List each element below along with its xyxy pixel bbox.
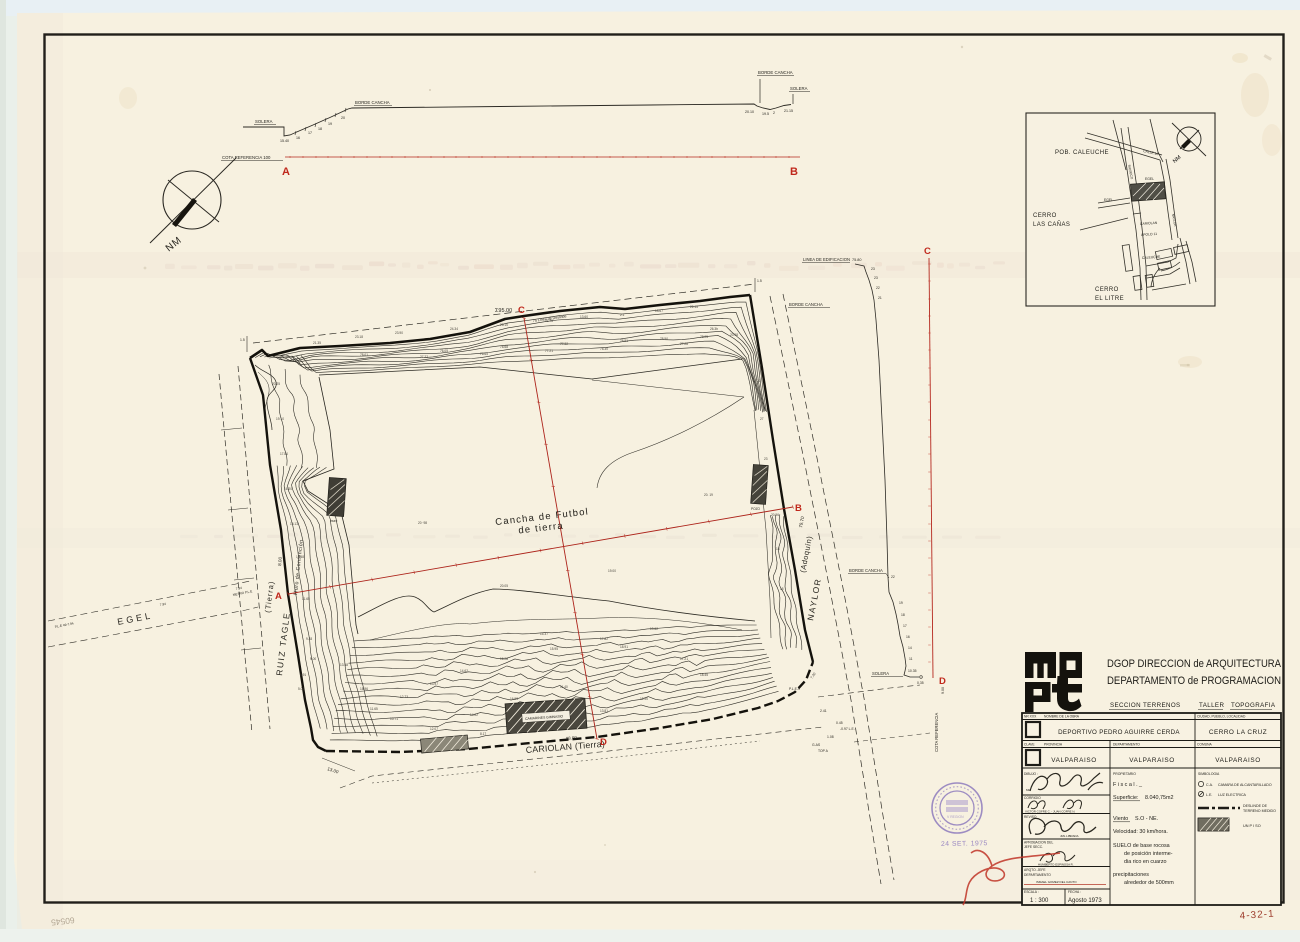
svg-text:16.20: 16.20 (284, 487, 292, 491)
svg-text:SOLERA: SOLERA (255, 119, 273, 124)
svg-text:13.48: 13.48 (296, 555, 304, 559)
svg-text:22: 22 (876, 286, 880, 290)
svg-text:2.41: 2.41 (820, 709, 827, 713)
svg-text:B: B (795, 503, 802, 514)
svg-text:DEPARTAMENTO de PROGRAMACION: DEPARTAMENTO de PROGRAMACION (1107, 675, 1281, 687)
svg-text:DESLINDE DE: DESLINDE DE (1243, 804, 1268, 808)
svg-text:10.35: 10.35 (908, 669, 917, 673)
svg-text:11.65: 11.65 (302, 597, 310, 601)
svg-text:8.17: 8.17 (480, 732, 486, 736)
svg-text:0.45: 0.45 (836, 721, 843, 725)
svg-text:6.91: 6.91 (300, 673, 306, 677)
svg-text:VALPARAISO: VALPARAISO (1215, 757, 1261, 764)
svg-text:SECCION TERRENOS: SECCION TERRENOS (1110, 702, 1181, 709)
svg-text:DEPORTIVO PEDRO AGUIRRE CERDA: DEPORTIVO PEDRO AGUIRRE CERDA (1058, 729, 1180, 736)
svg-text:CLAVE: CLAVE (1024, 743, 1035, 747)
svg-text:17.80: 17.80 (280, 452, 288, 456)
svg-text:21: 21 (878, 296, 882, 300)
svg-text:76.05: 76.05 (440, 349, 448, 353)
svg-text:ESCALA :: ESCALA : (1024, 890, 1039, 894)
svg-text:78.91: 78.91 (620, 339, 628, 343)
svg-text:15.95: 15.95 (550, 647, 558, 651)
svg-text:19.62: 19.62 (650, 627, 658, 631)
svg-text:24 SET. 1975: 24 SET. 1975 (941, 840, 988, 848)
svg-text:16.93: 16.93 (510, 697, 518, 701)
svg-text:NOMBRE DE LA OBRA: NOMBRE DE LA OBRA (1044, 715, 1080, 719)
svg-text:76.65: 76.65 (480, 352, 488, 356)
svg-text:A: A (282, 166, 290, 178)
svg-text:precipitaciones: precipitaciones (1113, 872, 1149, 878)
svg-text:27.28: 27.28 (680, 342, 688, 346)
svg-text:S.O - NE.: S.O - NE. (1135, 816, 1158, 822)
svg-text:15.96: 15.96 (360, 687, 368, 691)
svg-text:SIMBOLOGIA: SIMBOLOGIA (1198, 772, 1220, 776)
svg-text:20. 19: 20. 19 (704, 493, 713, 497)
svg-text:14: 14 (908, 646, 912, 650)
svg-text:VICTOR COFRE C. - JUAN COFRE N: VICTOR COFRE C. - JUAN COFRE N. (1025, 810, 1075, 814)
svg-text:77.21: 77.21 (545, 349, 553, 353)
svg-text:20.96: 20.96 (771, 513, 779, 517)
svg-text:LAS CAÑAS: LAS CAÑAS (1033, 221, 1070, 228)
svg-text:20: 20 (341, 116, 345, 120)
svg-text:muro: muro (330, 519, 337, 523)
svg-text:25.10: 25.10 (500, 323, 508, 327)
svg-text:BORDE CANCHA: BORDE CANCHA (355, 100, 390, 105)
svg-text:20.10: 20.10 (745, 110, 754, 114)
svg-text:88.50: 88.50 (566, 735, 578, 741)
svg-text:21.35: 21.35 (313, 341, 321, 345)
svg-text:L.E.: L.E. (1206, 793, 1212, 797)
svg-text:78.01: 78.01 (360, 353, 368, 357)
svg-text:1 : 300: 1 : 300 (1030, 898, 1049, 904)
svg-text:D: D (939, 676, 946, 687)
svg-text:BORDE CANCHA: BORDE CANCHA (849, 568, 883, 573)
svg-text:UN P I SO: UN P I SO (1243, 824, 1261, 828)
svg-text:19.00: 19.00 (608, 569, 616, 573)
svg-text:TOP A: TOP A (818, 749, 829, 753)
svg-text:VALPARAISO: VALPARAISO (1051, 757, 1097, 764)
svg-text:19.5: 19.5 (762, 112, 769, 116)
svg-text:PROVINCIA: PROVINCIA (1044, 743, 1063, 747)
svg-text:5.00: 5.00 (298, 687, 304, 691)
svg-text:12.90: 12.90 (640, 697, 648, 701)
svg-text:SOLERA: SOLERA (790, 86, 808, 91)
svg-text:8.040,75m2: 8.040,75m2 (1145, 795, 1173, 801)
svg-text:17: 17 (903, 624, 907, 628)
svg-text:MG: MG (1026, 788, 1031, 792)
svg-text:27.22: 27.22 (420, 355, 428, 359)
svg-text:D: D (600, 737, 607, 748)
svg-text:17: 17 (308, 131, 312, 135)
svg-text:Velocidad: 30 km/hora.: Velocidad: 30 km/hora. (1113, 829, 1168, 835)
svg-text:FECHA :: FECHA : (1068, 890, 1081, 894)
svg-text:G.AS: G.AS (812, 743, 821, 747)
svg-text:TERRENO MEDIDO: TERRENO MEDIDO (1243, 809, 1276, 813)
svg-text:21: 21 (757, 379, 761, 383)
svg-text:SOLERA: SOLERA (872, 671, 889, 676)
svg-text:11.40: 11.40 (560, 685, 568, 689)
svg-text:V REGION: V REGION (947, 815, 964, 819)
svg-text:CERRO: CERRO (1033, 213, 1057, 219)
svg-text:14.02: 14.02 (470, 713, 478, 717)
svg-text:CERRO LA CRUZ: CERRO LA CRUZ (1209, 729, 1267, 736)
svg-text:EGEL: EGEL (1104, 198, 1113, 202)
svg-text:13.48: 13.48 (340, 663, 348, 667)
svg-text:COTA REFERENCIA: COTA REFERENCIA (934, 713, 939, 752)
svg-text:0.35: 0.35 (917, 681, 924, 685)
svg-text:19.10: 19.10 (276, 417, 284, 421)
svg-text:11.65: 11.65 (370, 707, 378, 711)
svg-text:18: 18 (901, 613, 905, 617)
svg-text:HUMBERTO ESPINOSA R.: HUMBERTO ESPINOSA R. (1038, 863, 1074, 867)
svg-text:18.45: 18.45 (700, 673, 708, 677)
svg-text:JML LIBRADA: JML LIBRADA (1060, 834, 1079, 838)
svg-text:15: 15 (780, 587, 784, 591)
svg-text:17.82: 17.82 (600, 637, 608, 641)
svg-text:21.76: 21.76 (545, 319, 553, 323)
svg-text:POZO: POZO (751, 507, 761, 511)
svg-text:TOPOGRAFIA: TOPOGRAFIA (1231, 702, 1276, 709)
svg-text:DIBUJO :: DIBUJO : (1024, 772, 1038, 776)
svg-text:20.98: 20.98 (730, 333, 738, 337)
svg-text:26.3b: 26.3b (710, 327, 718, 331)
svg-text:21.15: 21.15 (784, 109, 793, 113)
svg-text:DEPARTAMENTO: DEPARTAMENTO (1024, 873, 1051, 877)
svg-text:TALLER: TALLER (1199, 702, 1224, 709)
svg-text:27: 27 (760, 417, 764, 421)
svg-text:Σ95.00: Σ95.00 (495, 308, 512, 314)
svg-text:20 ·98: 20 ·98 (418, 521, 427, 525)
svg-text:C.A.: C.A. (1206, 783, 1213, 787)
svg-text:Superficie:: Superficie: (1113, 795, 1138, 801)
svg-text:B: B (790, 166, 798, 178)
svg-text:alrededor de 500mm: alrededor de 500mm (1124, 880, 1174, 886)
svg-text:13.67: 13.67 (655, 309, 663, 313)
svg-text:12.07: 12.07 (430, 727, 438, 731)
svg-text:10.71: 10.71 (390, 717, 398, 721)
svg-text:P.L.E-9: P.L.E-9 (789, 687, 800, 691)
svg-text:F i s c a l . _: F i s c a l . _ (1113, 782, 1143, 788)
svg-text:1.08: 1.08 (827, 735, 834, 739)
svg-text:23.90: 23.90 (395, 331, 403, 335)
svg-text:11: 11 (909, 657, 913, 661)
svg-text:DGOP DIRECCION de ARQUITECTU: DGOP DIRECCION de ARQUITECTURA (1107, 658, 1282, 670)
svg-text:LINEA DE EDIFICACION: LINEA DE EDIFICACION (803, 257, 850, 262)
svg-text:12.73: 12.73 (400, 695, 408, 699)
svg-text:VALPARAISO: VALPARAISO (1129, 757, 1175, 764)
svg-text:Agosto 1973: Agosto 1973 (1068, 898, 1102, 904)
svg-text:SUELO de base rocosa: SUELO de base rocosa (1113, 843, 1170, 849)
svg-text:16: 16 (296, 136, 300, 140)
svg-text:78.68: 78.68 (500, 345, 508, 349)
svg-text:23: 23 (764, 457, 768, 461)
svg-text:78.50: 78.50 (660, 337, 668, 341)
svg-text:78.30: 78.30 (600, 347, 608, 351)
svg-text:18.91: 18.91 (620, 645, 628, 649)
svg-text:dia rico en cuarzo: dia rico en cuarzo (1124, 859, 1167, 865)
svg-text:9.48: 9.48 (306, 637, 312, 641)
svg-text:CERRO: CERRO (1095, 287, 1119, 293)
svg-text:COTA REFERENCIA 100: COTA REFERENCIA 100 (222, 155, 271, 160)
svg-text:13.97: 13.97 (430, 682, 438, 686)
svg-text:BORDE CANCHA: BORDE CANCHA (789, 302, 823, 307)
svg-text:9.00: 9.00 (310, 657, 316, 661)
svg-text:16.28: 16.28 (500, 657, 508, 661)
svg-text:22.15: 22.15 (690, 305, 698, 309)
svg-text:APROBACION DEL: APROBACION DEL (1024, 841, 1053, 845)
svg-text:-0.97 L.E.: -0.97 L.E. (840, 727, 855, 731)
svg-text:ISMAEL GOMEZ DEL CANTO: ISMAEL GOMEZ DEL CANTO (1036, 880, 1077, 884)
svg-text:EGEL: EGEL (1145, 177, 1154, 181)
svg-text:de posición interme-: de posición interme- (1124, 851, 1173, 857)
svg-text:1.5: 1.5 (240, 338, 245, 342)
svg-text:17.21: 17.21 (680, 657, 688, 661)
svg-text:13.81: 13.81 (600, 709, 608, 713)
svg-text:18: 18 (318, 127, 322, 131)
svg-text:24.34: 24.34 (450, 327, 458, 331)
svg-text:JEFE SECC.: JEFE SECC. (1024, 845, 1043, 849)
svg-text:C: C (518, 305, 525, 316)
svg-text:19: 19 (328, 122, 332, 126)
svg-text:BORDE CANCHA: BORDE CANCHA (758, 70, 793, 75)
svg-text:EL LITRE: EL LITRE (1095, 296, 1124, 302)
svg-text:13.60: 13.60 (580, 315, 588, 319)
svg-text:23: 23 (874, 276, 878, 280)
svg-text:Viento: Viento (1113, 816, 1128, 822)
svg-text:9.00: 9.00 (941, 687, 945, 694)
svg-text:NR XXX: NR XXX (1024, 715, 1037, 719)
svg-text:DEPARTAMENTO: DEPARTAMENTO (1113, 743, 1140, 747)
svg-text:18: 18 (776, 547, 780, 551)
svg-text:CIUDAD, PUEBLO, LOCALIDAD: CIUDAD, PUEBLO, LOCALIDAD (1197, 715, 1246, 719)
svg-text:8.00: 8.00 (277, 556, 283, 566)
svg-text:15.37: 15.37 (540, 632, 548, 636)
svg-text:75.80: 75.80 (852, 258, 862, 262)
svg-text:14.62: 14.62 (460, 669, 468, 673)
svg-text:15.40: 15.40 (280, 139, 289, 143)
svg-text:CORRIGIO: CORRIGIO (1024, 796, 1041, 800)
svg-text:77.32: 77.32 (560, 342, 568, 346)
svg-text:78.05: 78.05 (700, 335, 708, 339)
svg-text:ARQTO. JEFE: ARQTO. JEFE (1024, 868, 1046, 872)
svg-text:1.5: 1.5 (757, 279, 762, 283)
svg-text:15.13: 15.13 (290, 522, 298, 526)
svg-text:PROPIETARIO: PROPIETARIO (1113, 772, 1136, 776)
svg-text:COMUNA: COMUNA (1197, 743, 1212, 747)
svg-text:C: C (924, 246, 931, 257)
svg-text:2: 2 (773, 111, 775, 115)
svg-text:22: 22 (891, 575, 895, 579)
svg-text:16: 16 (906, 635, 910, 639)
svg-text:CAMARA DE ALCANTARILLADO: CAMARA DE ALCANTARILLADO (1218, 783, 1272, 787)
svg-text:2.1: 2.1 (620, 313, 625, 317)
svg-text:23: 23 (871, 267, 875, 271)
svg-text:19: 19 (899, 601, 903, 605)
svg-text:A: A (275, 591, 282, 602)
svg-text:23.18: 23.18 (355, 335, 363, 339)
svg-text:LUZ ELECTRICA: LUZ ELECTRICA (1218, 793, 1247, 797)
svg-text:POB. CALEUCHE: POB. CALEUCHE (1055, 150, 1109, 156)
svg-text:10.35: 10.35 (520, 723, 528, 727)
svg-text:20.05: 20.05 (500, 584, 508, 588)
svg-text:20.25: 20.25 (272, 382, 280, 386)
